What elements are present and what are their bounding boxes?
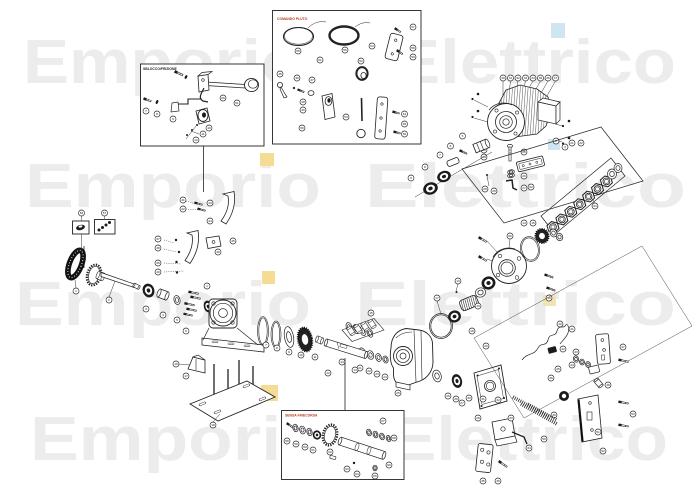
svg-text:64: 64 bbox=[403, 112, 407, 116]
svg-text:29: 29 bbox=[492, 189, 496, 193]
svg-text:34: 34 bbox=[531, 76, 535, 80]
svg-text:60: 60 bbox=[221, 96, 225, 100]
svg-text:34: 34 bbox=[527, 446, 531, 450]
svg-text:43: 43 bbox=[574, 350, 578, 354]
svg-text:24: 24 bbox=[383, 375, 387, 379]
svg-text:SBLOCCO/FRIZIONE: SBLOCCO/FRIZIONE bbox=[143, 67, 177, 71]
svg-text:59: 59 bbox=[411, 55, 415, 59]
svg-text:59: 59 bbox=[294, 442, 298, 446]
svg-text:1: 1 bbox=[206, 284, 208, 288]
svg-text:49: 49 bbox=[301, 108, 305, 112]
svg-text:15: 15 bbox=[531, 221, 535, 225]
svg-text:66: 66 bbox=[387, 463, 391, 467]
svg-text:30: 30 bbox=[467, 396, 471, 400]
svg-text:21: 21 bbox=[570, 141, 574, 145]
svg-text:8: 8 bbox=[424, 165, 426, 169]
svg-text:8: 8 bbox=[156, 112, 158, 116]
svg-text:45: 45 bbox=[278, 72, 282, 76]
svg-text:40: 40 bbox=[156, 270, 160, 274]
svg-text:23: 23 bbox=[375, 372, 379, 376]
svg-text:47: 47 bbox=[621, 345, 625, 349]
svg-text:52: 52 bbox=[359, 59, 363, 63]
svg-text:52: 52 bbox=[601, 449, 605, 453]
svg-text:25: 25 bbox=[396, 391, 400, 395]
svg-text:Elettrico: Elettrico bbox=[393, 28, 676, 97]
svg-text:58: 58 bbox=[285, 439, 289, 443]
svg-text:11: 11 bbox=[201, 132, 204, 136]
svg-text:2: 2 bbox=[555, 139, 557, 143]
svg-text:39: 39 bbox=[156, 261, 160, 265]
svg-text:66: 66 bbox=[508, 234, 512, 238]
svg-text:5: 5 bbox=[462, 134, 464, 138]
svg-text:55: 55 bbox=[296, 49, 300, 53]
svg-text:58: 58 bbox=[411, 46, 415, 50]
svg-text:41: 41 bbox=[570, 327, 574, 331]
svg-text:1: 1 bbox=[75, 289, 77, 293]
svg-text:33: 33 bbox=[509, 416, 513, 420]
svg-text:16: 16 bbox=[174, 362, 178, 366]
svg-text:33: 33 bbox=[524, 76, 528, 80]
svg-text:15: 15 bbox=[369, 311, 373, 315]
svg-text:12: 12 bbox=[326, 371, 330, 375]
svg-text:65: 65 bbox=[373, 474, 377, 478]
svg-text:30: 30 bbox=[501, 76, 505, 80]
svg-text:3: 3 bbox=[145, 307, 147, 311]
svg-text:51: 51 bbox=[596, 430, 600, 434]
svg-text:53: 53 bbox=[631, 412, 635, 416]
svg-text:61: 61 bbox=[235, 101, 239, 105]
svg-text:54: 54 bbox=[370, 44, 374, 48]
svg-text:4: 4 bbox=[162, 313, 164, 317]
svg-text:26: 26 bbox=[446, 394, 450, 398]
svg-text:29: 29 bbox=[454, 397, 458, 401]
svg-text:3: 3 bbox=[564, 145, 566, 149]
svg-text:35: 35 bbox=[481, 479, 485, 483]
svg-text:Emporio: Emporio bbox=[25, 152, 321, 221]
svg-text:46: 46 bbox=[549, 376, 553, 380]
svg-text:22: 22 bbox=[579, 141, 583, 145]
svg-text:46: 46 bbox=[295, 76, 299, 80]
svg-text:7: 7 bbox=[145, 109, 147, 113]
svg-text:32: 32 bbox=[516, 76, 520, 80]
svg-text:62: 62 bbox=[328, 450, 332, 454]
svg-text:68: 68 bbox=[392, 436, 396, 440]
svg-text:57: 57 bbox=[411, 25, 415, 29]
svg-text:63: 63 bbox=[593, 204, 597, 208]
svg-text:37: 37 bbox=[554, 76, 558, 80]
svg-text:42: 42 bbox=[181, 207, 185, 211]
svg-text:56: 56 bbox=[80, 211, 84, 215]
svg-text:44: 44 bbox=[570, 363, 574, 367]
svg-text:66: 66 bbox=[403, 132, 407, 136]
svg-text:12: 12 bbox=[194, 138, 198, 142]
svg-text:64: 64 bbox=[355, 472, 359, 476]
svg-text:37: 37 bbox=[156, 237, 160, 241]
svg-text:9: 9 bbox=[410, 176, 412, 180]
svg-text:18: 18 bbox=[470, 329, 474, 333]
svg-text:45: 45 bbox=[231, 239, 235, 243]
svg-text:31: 31 bbox=[481, 397, 485, 401]
svg-text:6: 6 bbox=[450, 144, 452, 148]
svg-text:65: 65 bbox=[403, 122, 407, 126]
svg-text:50: 50 bbox=[300, 126, 304, 130]
svg-text:60: 60 bbox=[303, 445, 307, 449]
svg-text:48: 48 bbox=[606, 383, 610, 387]
svg-text:10: 10 bbox=[207, 126, 211, 130]
svg-text:36: 36 bbox=[496, 479, 500, 483]
svg-text:27: 27 bbox=[522, 186, 526, 190]
svg-text:42: 42 bbox=[561, 347, 565, 351]
svg-text:56: 56 bbox=[343, 48, 347, 52]
svg-text:18: 18 bbox=[211, 423, 215, 427]
svg-text:19: 19 bbox=[476, 304, 480, 308]
svg-text:2: 2 bbox=[108, 298, 110, 302]
svg-text:50: 50 bbox=[542, 437, 546, 441]
svg-text:8: 8 bbox=[276, 346, 278, 350]
svg-text:21: 21 bbox=[358, 366, 362, 370]
svg-text:40: 40 bbox=[558, 322, 562, 326]
svg-text:7: 7 bbox=[265, 343, 267, 347]
svg-text:51: 51 bbox=[318, 58, 322, 62]
svg-text:13: 13 bbox=[456, 279, 460, 283]
svg-text:17: 17 bbox=[184, 374, 188, 378]
svg-text:31: 31 bbox=[509, 76, 513, 80]
svg-text:47: 47 bbox=[310, 78, 314, 82]
svg-text:48: 48 bbox=[301, 100, 305, 104]
svg-text:5: 5 bbox=[176, 318, 178, 322]
svg-text:14: 14 bbox=[522, 221, 526, 225]
svg-text:6: 6 bbox=[185, 329, 187, 333]
svg-text:63: 63 bbox=[345, 467, 349, 471]
svg-text:26: 26 bbox=[522, 174, 526, 178]
svg-text:7: 7 bbox=[439, 153, 441, 157]
svg-text:14: 14 bbox=[353, 368, 357, 372]
svg-text:41: 41 bbox=[181, 198, 185, 202]
svg-text:57: 57 bbox=[103, 211, 107, 215]
svg-text:45: 45 bbox=[556, 367, 560, 371]
svg-text:17: 17 bbox=[435, 296, 439, 300]
svg-text:11: 11 bbox=[313, 355, 316, 359]
svg-text:SENSA FINECORSA: SENSA FINECORSA bbox=[285, 414, 318, 418]
svg-text:27: 27 bbox=[460, 401, 464, 405]
svg-text:13: 13 bbox=[340, 360, 344, 364]
svg-text:67: 67 bbox=[381, 419, 385, 423]
svg-text:53: 53 bbox=[344, 115, 348, 119]
svg-text:61: 61 bbox=[311, 448, 315, 452]
svg-text:28: 28 bbox=[476, 416, 480, 420]
svg-text:44: 44 bbox=[208, 219, 212, 223]
svg-text:36: 36 bbox=[546, 76, 550, 80]
svg-text:38: 38 bbox=[156, 246, 160, 250]
svg-text:62: 62 bbox=[529, 185, 533, 189]
svg-text:10: 10 bbox=[299, 353, 303, 357]
svg-text:9: 9 bbox=[288, 350, 290, 354]
svg-text:20: 20 bbox=[484, 344, 488, 348]
svg-text:22: 22 bbox=[367, 369, 371, 373]
svg-text:COMANDO PLUTO: COMANDO PLUTO bbox=[277, 17, 308, 21]
svg-text:43: 43 bbox=[208, 201, 212, 205]
svg-text:32: 32 bbox=[496, 398, 500, 402]
svg-text:46: 46 bbox=[216, 250, 220, 254]
svg-text:28: 28 bbox=[483, 187, 487, 191]
svg-text:9: 9 bbox=[172, 117, 174, 121]
svg-text:35: 35 bbox=[539, 76, 543, 80]
